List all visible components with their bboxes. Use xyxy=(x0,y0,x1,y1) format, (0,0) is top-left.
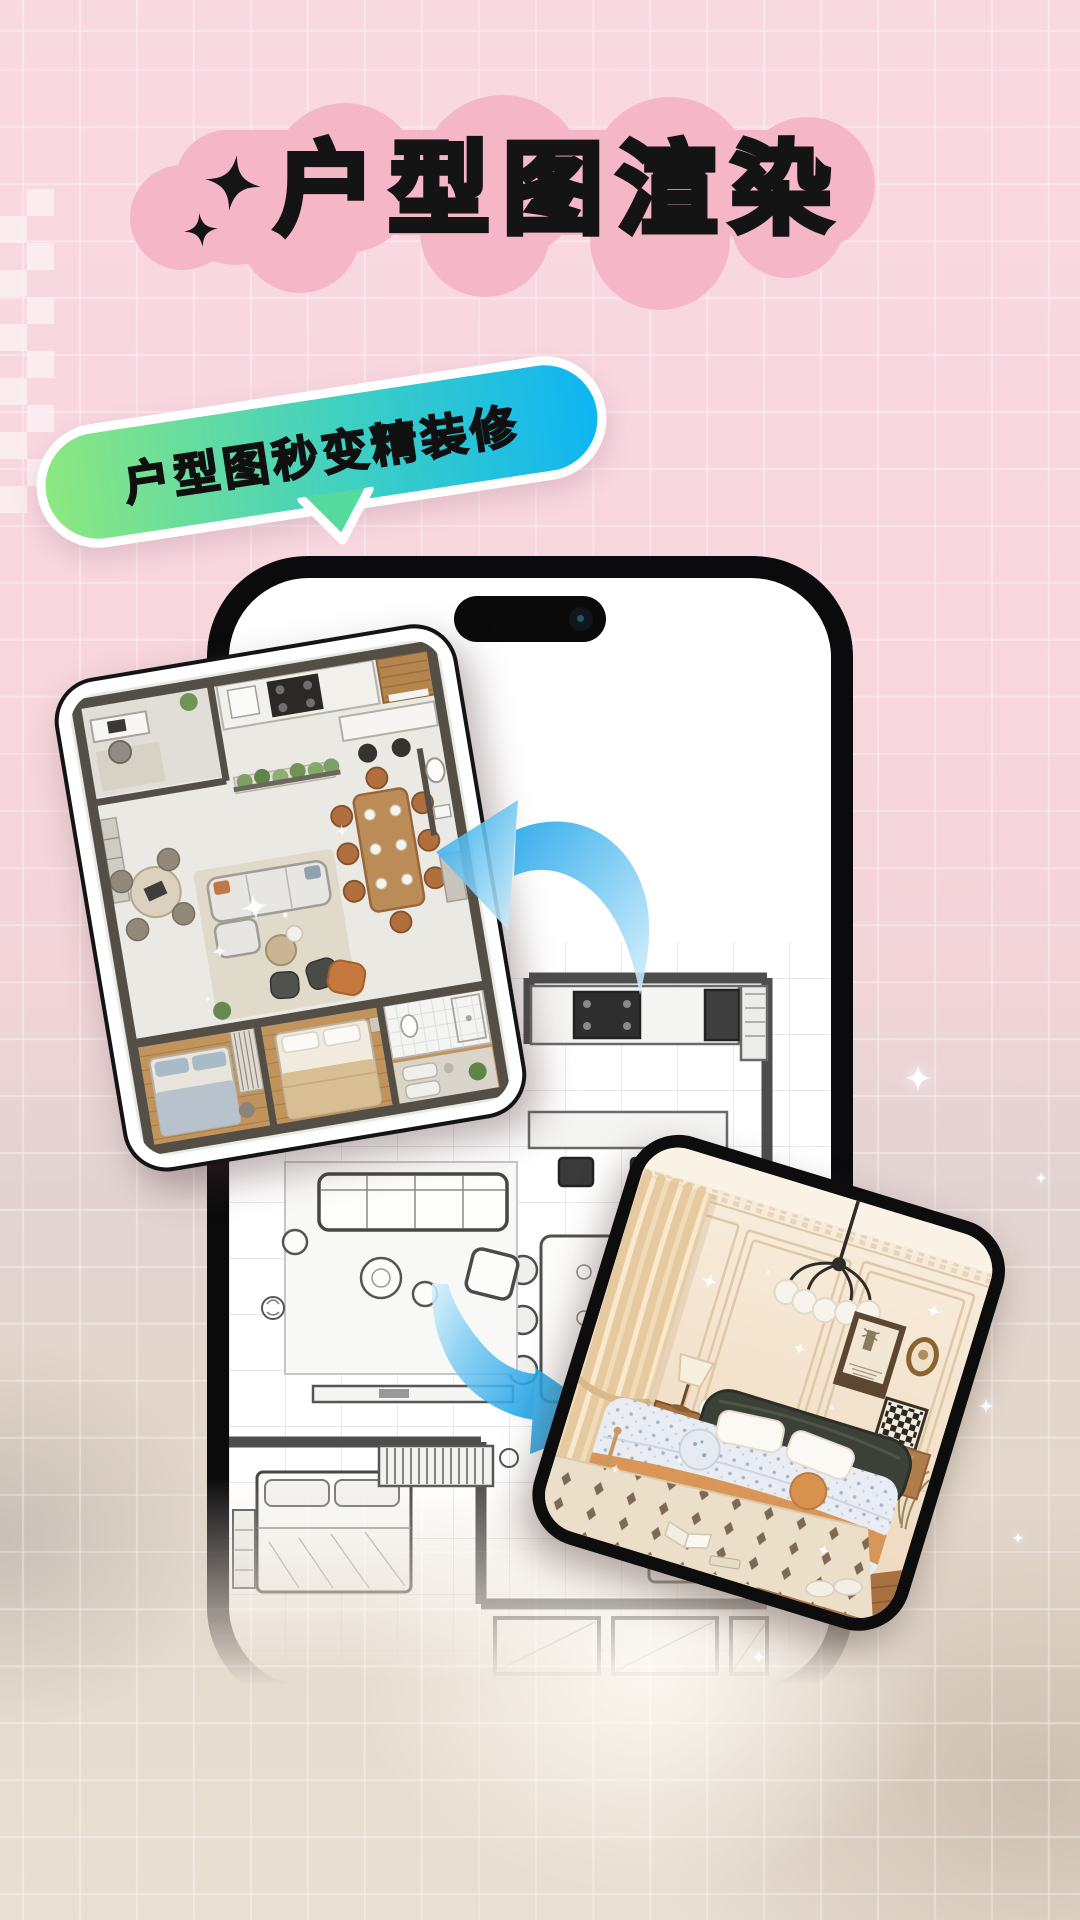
camera-icon xyxy=(569,607,593,631)
promo-poster: 户型图渲染 户型图秒变精装修 xyxy=(0,0,1080,1920)
dynamic-island xyxy=(454,596,606,642)
page-title: 户型图渲染 xyxy=(140,100,980,260)
white-sparkle-icon xyxy=(1012,1532,1024,1544)
white-sparkle-icon xyxy=(1035,1172,1047,1184)
white-sparkle-icon xyxy=(905,1065,931,1091)
white-sparkle-icon xyxy=(978,1398,994,1414)
arrow-left-icon xyxy=(432,790,662,1005)
